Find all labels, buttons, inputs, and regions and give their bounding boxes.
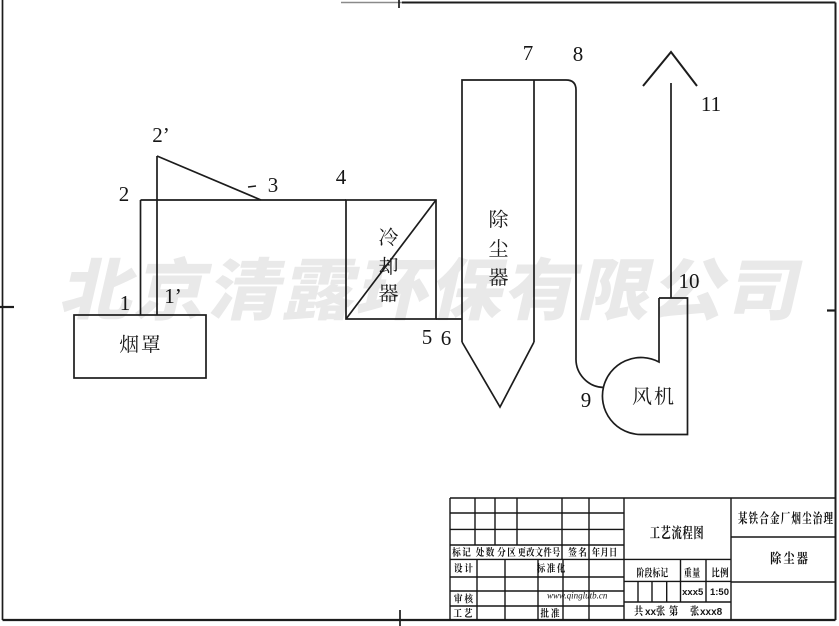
- svg-text:1:50: 1:50: [710, 587, 729, 598]
- svg-text:1: 1: [120, 291, 131, 315]
- svg-text:xxx8: xxx8: [700, 607, 723, 618]
- svg-text:4: 4: [336, 165, 347, 189]
- svg-text:11: 11: [701, 92, 721, 116]
- svg-text:2: 2: [119, 182, 130, 206]
- svg-text:8: 8: [573, 42, 584, 66]
- svg-text:xx: xx: [645, 607, 657, 618]
- svg-text:6: 6: [441, 326, 452, 350]
- svg-text:3: 3: [268, 173, 279, 197]
- svg-text:1’: 1’: [164, 284, 182, 308]
- svg-text:9: 9: [581, 388, 592, 412]
- svg-text:5: 5: [422, 325, 433, 349]
- svg-text:xxx5: xxx5: [682, 587, 704, 598]
- svg-text:10: 10: [679, 269, 700, 293]
- svg-text:7: 7: [523, 41, 534, 65]
- svg-text:www.qinglutb.cn: www.qinglutb.cn: [547, 591, 608, 601]
- svg-text:2’: 2’: [152, 123, 170, 147]
